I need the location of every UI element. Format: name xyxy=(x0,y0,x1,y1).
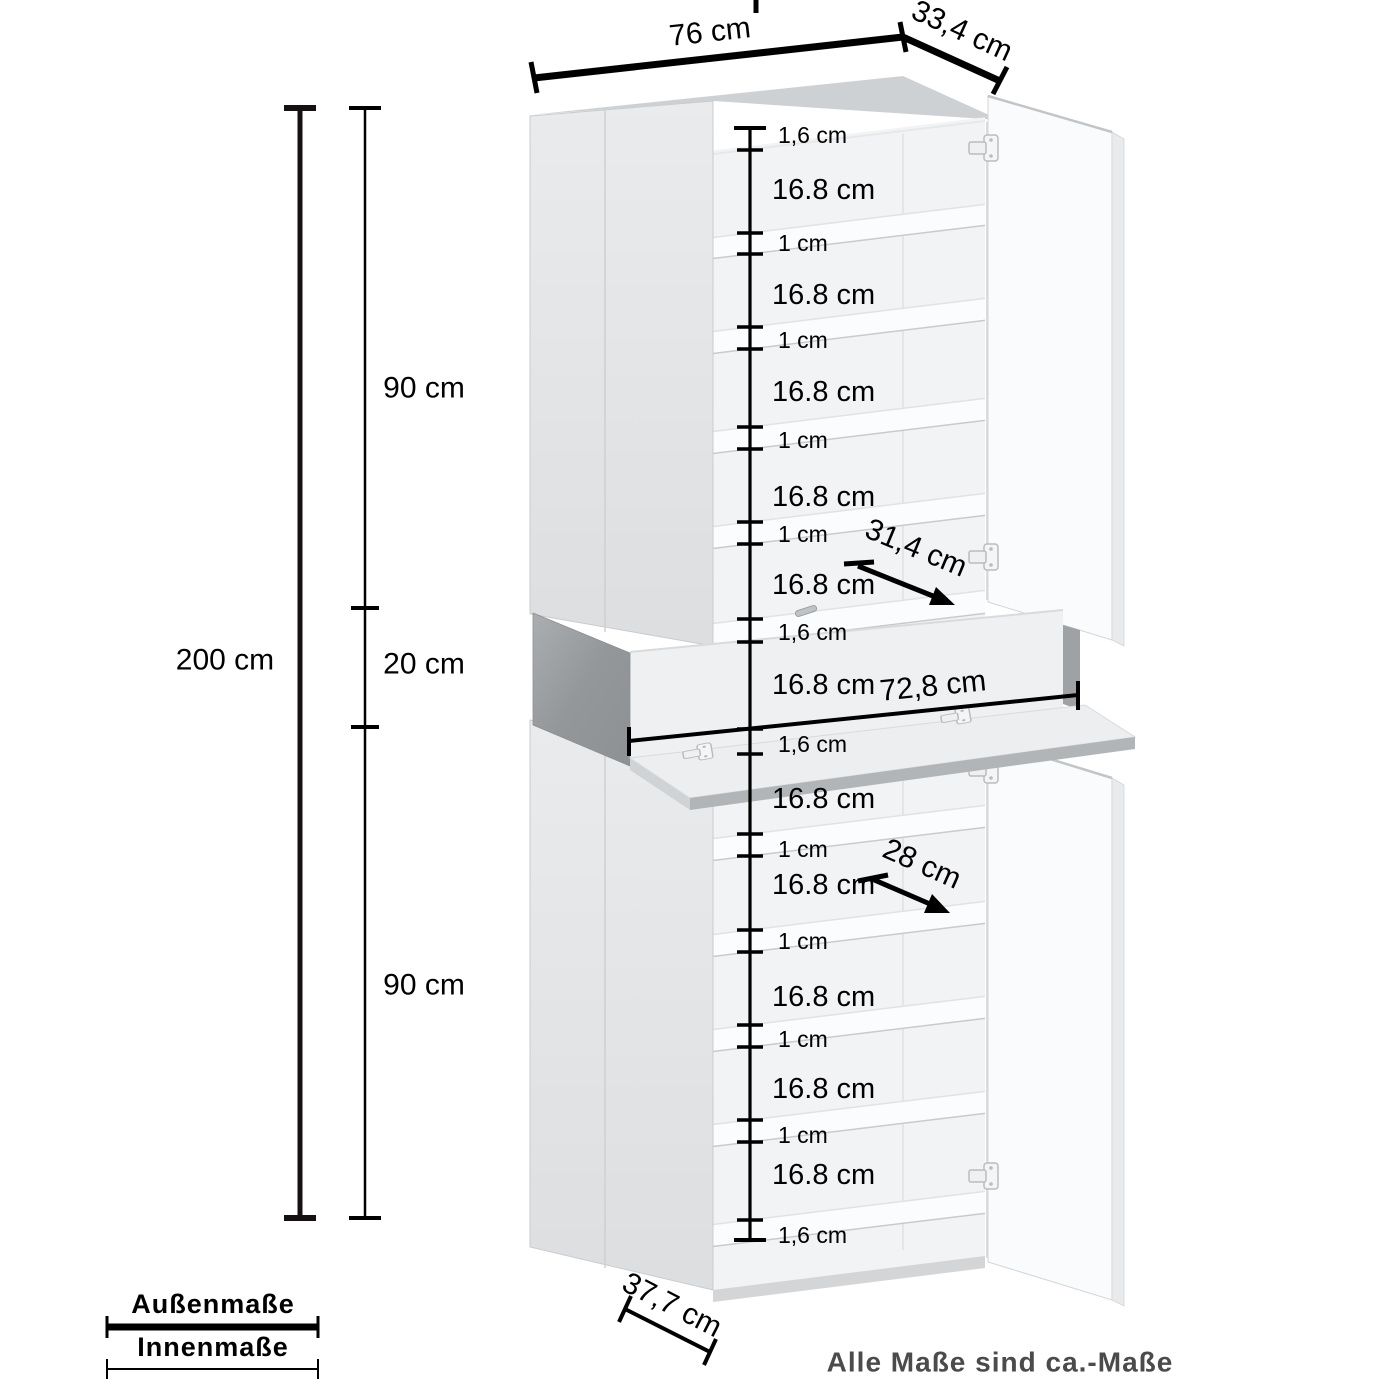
dim-section-90-bottom-label: 90 cm xyxy=(383,969,465,1002)
inner-segment-label: 16.8 cm xyxy=(772,783,875,815)
tick-mark xyxy=(844,562,874,564)
open-door-top xyxy=(988,96,1112,640)
inner-segment-label: 16.8 cm xyxy=(772,1159,875,1191)
inner-segment-label: 16.8 cm xyxy=(772,869,875,901)
inner-segment-label: 16.8 cm xyxy=(772,174,875,206)
inner-segment-label: 1 cm xyxy=(778,1122,828,1148)
inner-segment-label: 16.8 cm xyxy=(772,669,875,701)
inner-segment-label: 1,6 cm xyxy=(778,731,847,757)
product-dimension-diagram: 76 cm 33,4 cm 200 cm 90 cm 20 cm 90 cm 1… xyxy=(0,0,1400,1400)
dim-width-top-label: 76 cm xyxy=(668,11,753,53)
dim-section-90-top-label: 90 cm xyxy=(383,372,465,405)
inner-segment-label: 1,6 cm xyxy=(778,122,847,148)
cabinet-illustration: 76 cm 33,4 cm 200 cm 90 cm 20 cm 90 cm 1… xyxy=(0,0,1400,1400)
inner-segment-label: 16.8 cm xyxy=(772,376,875,408)
dim-section-20-label: 20 cm xyxy=(383,648,465,681)
inner-segment-label: 1 cm xyxy=(778,427,828,453)
tick-mark xyxy=(531,62,537,93)
inner-segment-label: 1 cm xyxy=(778,928,828,954)
legend: Außenmaße Innenmaße xyxy=(107,1289,318,1379)
open-door-bottom xyxy=(988,740,1112,1300)
inner-segment-label: 16.8 cm xyxy=(772,1073,875,1105)
dim-total-height-label: 200 cm xyxy=(176,644,274,677)
inner-segment-label: 1 cm xyxy=(778,1026,828,1052)
legend-outer-label: Außenmaße xyxy=(131,1289,295,1319)
legend-inner-label: Innenmaße xyxy=(137,1332,289,1362)
inner-segment-label: 1,6 cm xyxy=(778,619,847,645)
dim-depth-top-label: 33,4 cm xyxy=(907,0,1018,68)
inner-segment-label: 1 cm xyxy=(778,327,828,353)
inner-segment-label: 16.8 cm xyxy=(772,981,875,1013)
open-door-bottom-edge xyxy=(1112,778,1124,1306)
open-door-top-edge xyxy=(1112,132,1124,646)
inner-segment-label: 16.8 cm xyxy=(772,279,875,311)
inner-segment-label: 1 cm xyxy=(778,836,828,862)
inner-segment-label: 16.8 cm xyxy=(772,569,875,601)
inner-segment-label: 16.8 cm xyxy=(772,481,875,513)
inner-segment-label: 1 cm xyxy=(778,521,828,547)
inner-segment-label: 1,6 cm xyxy=(778,1222,847,1248)
closed-door-top xyxy=(530,101,713,646)
inner-segment-label: 1 cm xyxy=(778,230,828,256)
footnote-text: Alle Maße sind ca.-Maße xyxy=(827,1347,1174,1378)
